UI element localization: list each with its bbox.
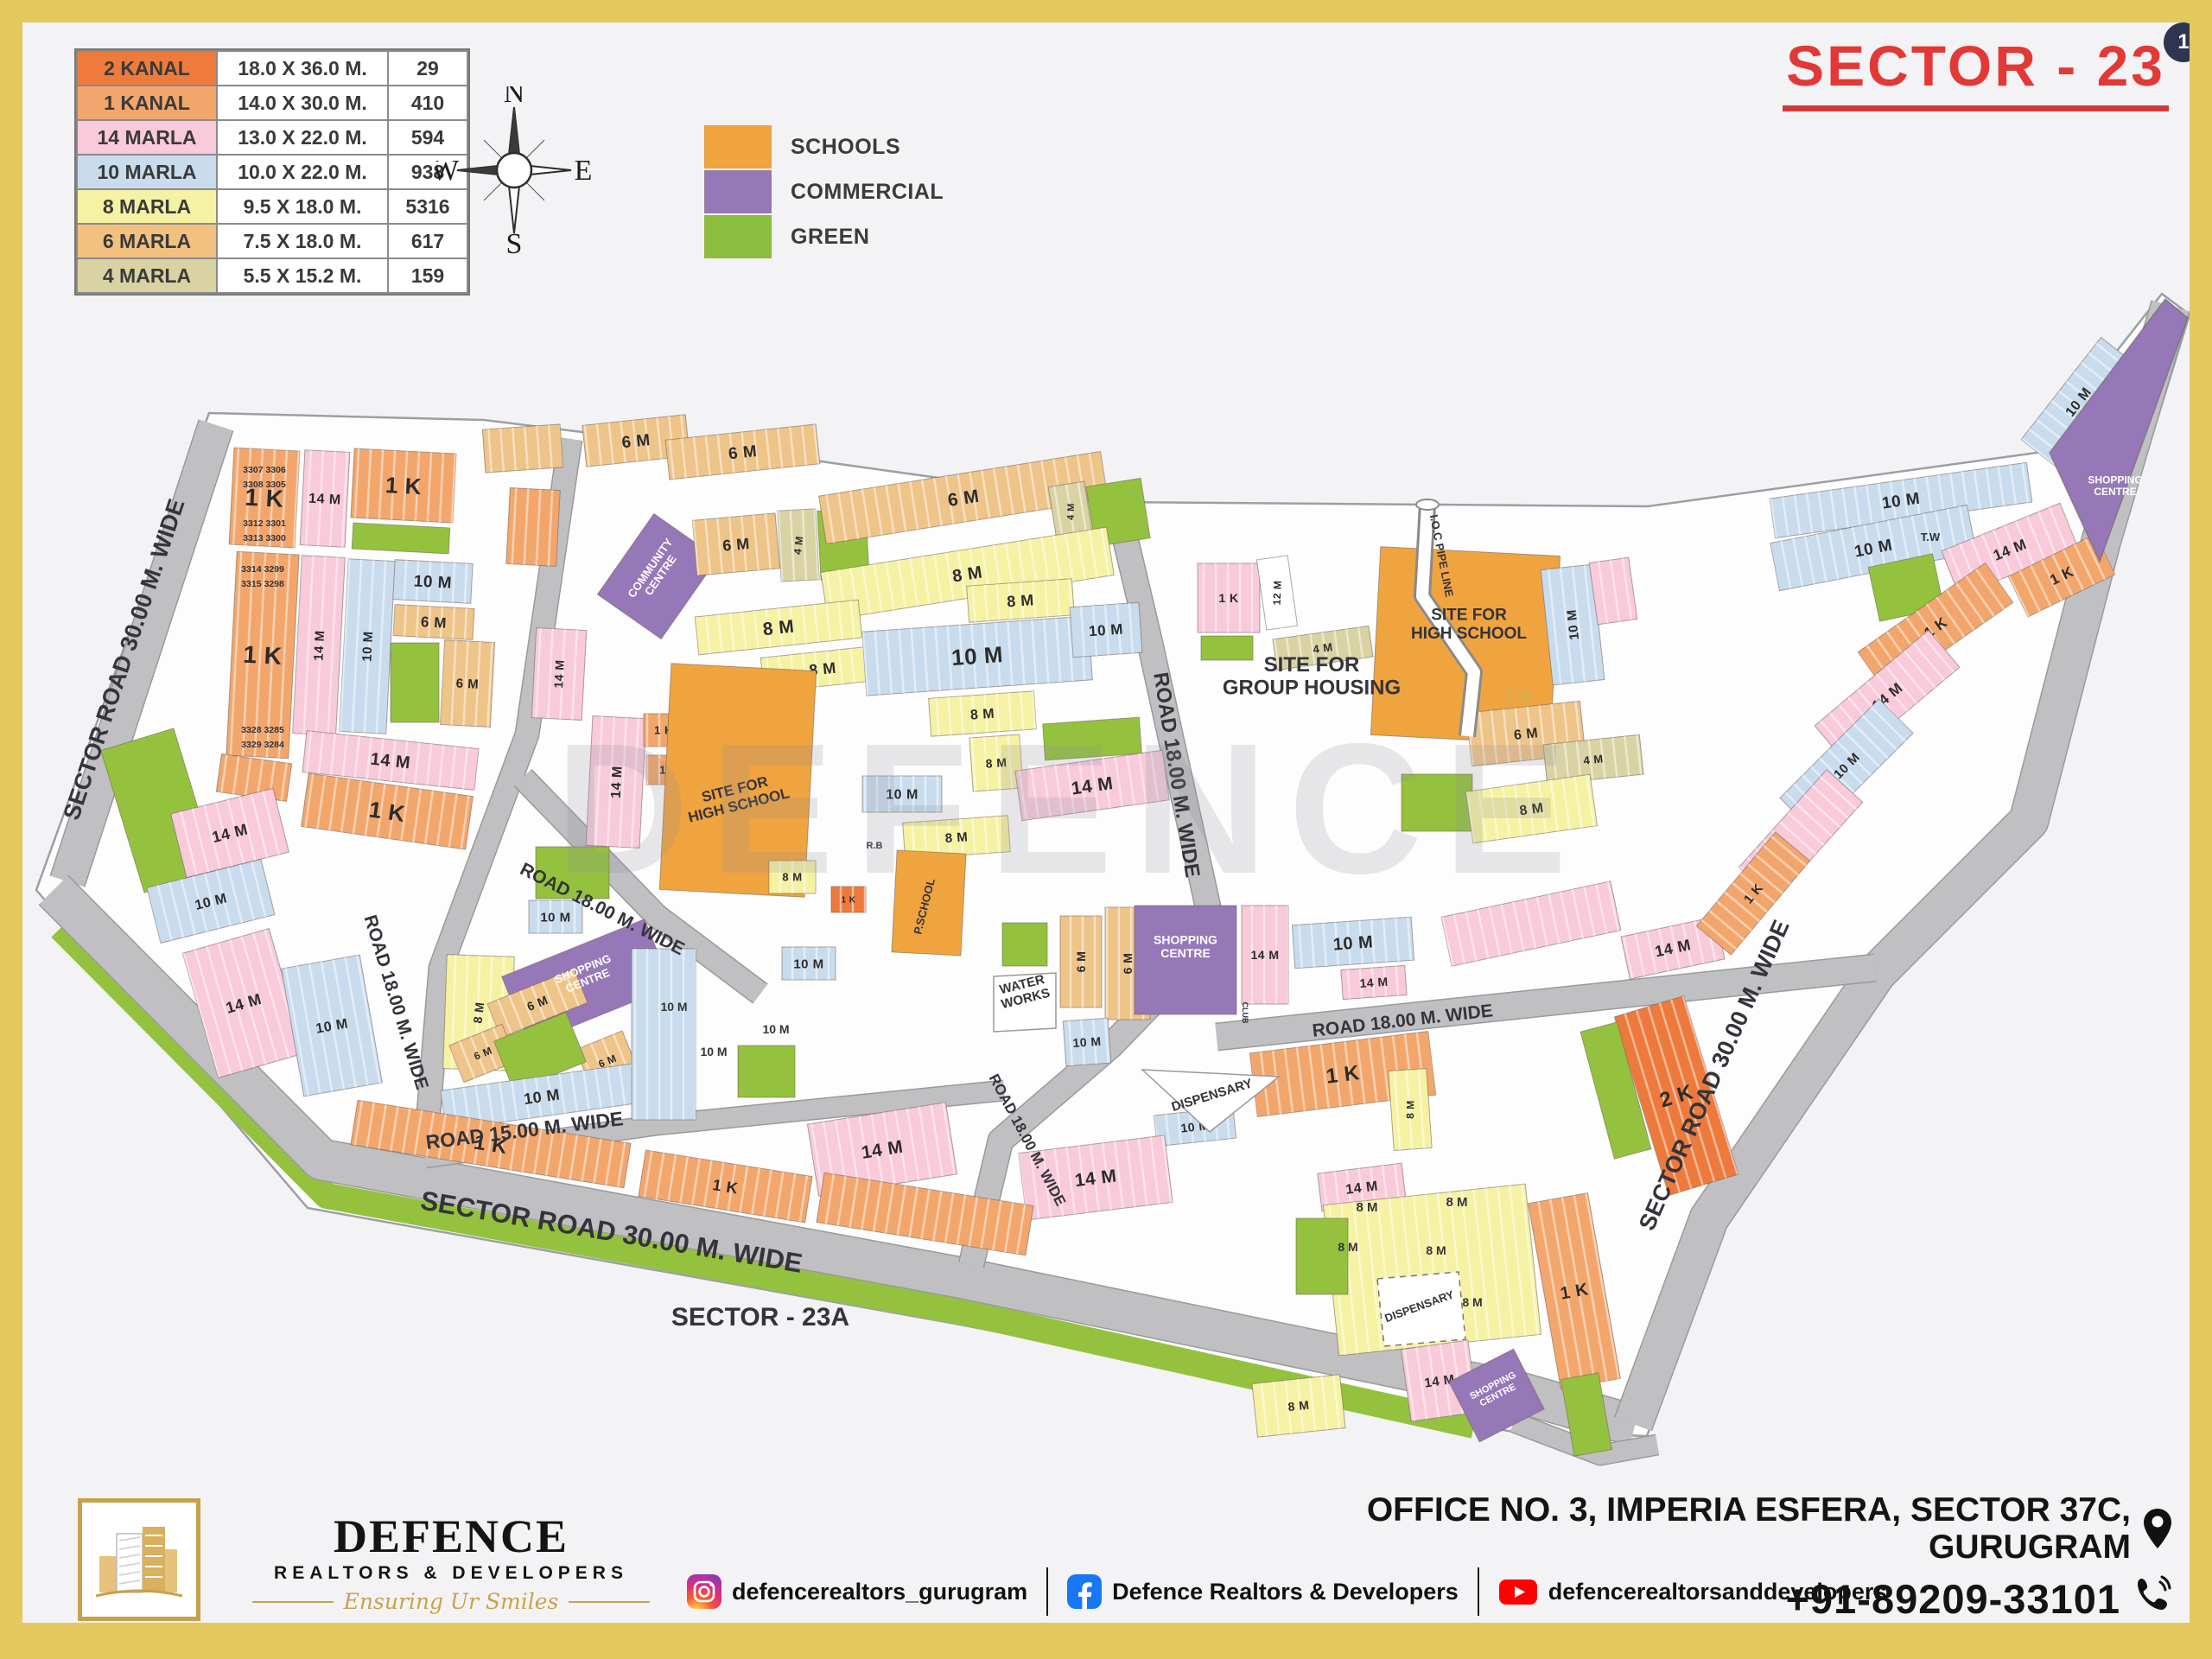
land-use-label: COMMERCIAL xyxy=(791,180,944,205)
plot-type-row: 4 MARLA5.5 X 15.2 M.159 xyxy=(77,258,467,293)
map-label: DEFENCE xyxy=(555,704,1587,912)
building-logo-icon xyxy=(91,1511,188,1608)
map-block: 10 M xyxy=(393,560,473,604)
block-label: 12 M xyxy=(1271,580,1284,605)
map-label: 3315 3298 xyxy=(241,579,284,589)
brand-name: DEFENCE xyxy=(252,1512,650,1561)
block-label: 1 K xyxy=(243,641,283,670)
map-block: 6 M xyxy=(440,640,494,728)
land-use-label: SCHOOLS xyxy=(791,135,900,160)
map-block: 14 M xyxy=(293,556,346,735)
map-label: 8 M xyxy=(1356,1200,1377,1215)
map-block: 6 M xyxy=(393,605,474,640)
phone-number: +91-89209-33101 xyxy=(1786,1575,2120,1623)
map-block: 10 M xyxy=(1070,602,1142,657)
map-label: 10 M xyxy=(762,1022,789,1036)
map-block: 10 M xyxy=(782,947,836,980)
block-label: 4 M xyxy=(791,535,806,555)
page-title: SECTOR - 23 xyxy=(1783,33,2169,111)
map-label: 3307 3306 xyxy=(243,465,286,475)
map-block: 4 M xyxy=(778,509,819,582)
block-label: 10 M xyxy=(413,573,452,593)
map-block: 8 M xyxy=(1252,1375,1345,1437)
block-label: 10 M xyxy=(1072,1034,1102,1050)
office-address-line2: GURUGRAM xyxy=(1367,1529,2131,1567)
block-label: 10 M xyxy=(1089,621,1124,640)
compass-south-label: S xyxy=(506,228,523,255)
land-use-item: COMMERCIAL xyxy=(704,171,944,213)
map-label: 3329 3284 xyxy=(241,740,284,750)
block-label: 4 M xyxy=(1066,503,1077,520)
block-label: 6 M xyxy=(1121,953,1135,975)
block-label: 14 M xyxy=(1250,948,1279,962)
map-block: 10 M xyxy=(1292,917,1414,969)
block-label: 8 M xyxy=(1287,1398,1310,1414)
block-label: 6 M xyxy=(455,677,479,692)
plot-size-legend-table: 2 KANAL18.0 X 36.0 M.291 KANAL14.0 X 30.… xyxy=(76,50,468,294)
plot-type-row: 8 MARLA9.5 X 18.0 M.5316 xyxy=(77,189,467,224)
map-label: 8 M xyxy=(1446,1195,1467,1210)
map-block: 1 K xyxy=(351,448,456,523)
map-block: 6 M xyxy=(1060,916,1102,1007)
block-label: 6 M xyxy=(621,431,652,452)
map-block: 10 M xyxy=(340,559,395,734)
map-block xyxy=(738,1046,795,1097)
map-label: 3308 3305 xyxy=(243,480,286,490)
plot-type-row: 14 MARLA13.0 X 22.0 M.594 xyxy=(77,120,467,155)
compass-west-label: W xyxy=(436,155,460,187)
land-use-swatch xyxy=(704,170,772,213)
land-use-item: GREEN xyxy=(704,216,944,257)
instagram-icon xyxy=(687,1574,721,1609)
map-block xyxy=(482,424,563,473)
map-label: 3314 3299 xyxy=(241,564,284,575)
block-label: 10 M xyxy=(1332,932,1374,954)
map-block: 8 M xyxy=(967,579,1075,622)
office-address-line1: OFFICE NO. 3, IMPERIA ESFERA, SECTOR 37C… xyxy=(1367,1491,2131,1529)
facebook-icon xyxy=(1067,1574,1102,1609)
phone-icon xyxy=(2133,1575,2172,1615)
map-label: SHOPPINGCENTRE xyxy=(2088,474,2142,497)
map-label: T.W xyxy=(1921,531,1941,543)
block-label: 6 M xyxy=(1074,951,1088,973)
block-label: 1 K xyxy=(1325,1061,1361,1089)
location-pin-icon xyxy=(2143,1508,2172,1549)
map-label: 10 M xyxy=(660,1000,687,1014)
block-label: 8 M xyxy=(470,1001,486,1025)
map-block xyxy=(632,949,696,1120)
map-block xyxy=(1296,1218,1348,1294)
page: 1 K14 M1 K6 M6 M1 K14 M10 M10 M6 M6 M14 … xyxy=(0,0,2212,1659)
block-label: 10 M xyxy=(793,957,823,971)
social-item-instagram[interactable]: defencerealtors_gurugram xyxy=(687,1574,1027,1609)
plot-type-row: 10 MARLA10.0 X 22.0 M.938 xyxy=(77,155,467,189)
land-use-item: SCHOOLS xyxy=(704,126,944,168)
land-use-swatch xyxy=(704,215,772,258)
map-label: SHOPPINGCENTRE xyxy=(1154,932,1217,960)
map-block xyxy=(1135,906,1236,1014)
map-block xyxy=(391,643,439,722)
block-label: 14 M xyxy=(551,659,567,689)
block-label: 6 M xyxy=(421,613,448,632)
map-label: SECTOR - 23A xyxy=(671,1303,849,1332)
map-label: 8 M xyxy=(1462,1295,1482,1309)
map-label: 3312 3301 xyxy=(243,518,286,529)
block-label: 6 M xyxy=(728,442,758,463)
block-label: 14 M xyxy=(308,492,341,508)
brand-tagline: Ensuring Ur Smiles xyxy=(252,1589,650,1614)
map-block: 1 K xyxy=(1198,563,1260,632)
block-label: 1 K xyxy=(367,796,407,827)
plot-type-row: 2 KANAL18.0 X 36.0 M.29 xyxy=(77,51,467,86)
compass-rose: N S W E xyxy=(436,86,592,255)
map-label: 3328 3285 xyxy=(241,725,284,735)
corner-badge: 1 xyxy=(2164,22,2203,62)
compass-north-label: N xyxy=(504,86,525,109)
map-block xyxy=(1589,557,1637,625)
map-block: 14 M xyxy=(300,450,350,548)
map-block xyxy=(506,488,561,567)
map-label: 8 M xyxy=(1338,1240,1357,1254)
brand-subtitle: REALTORS & DEVELOPERS xyxy=(252,1563,650,1584)
compass-east-label: E xyxy=(575,155,592,187)
plot-type-row: 1 KANAL14.0 X 30.0 M.410 xyxy=(77,86,467,120)
block-label: 8 M xyxy=(1404,1100,1416,1119)
social-handle: defencerealtors_gurugram xyxy=(732,1579,1027,1605)
block-label: 14 M xyxy=(1359,975,1389,990)
map-block: 10 M xyxy=(1063,1018,1111,1066)
contact-block: OFFICE NO. 3, IMPERIA ESFERA, SECTOR 37C… xyxy=(1367,1491,2172,1623)
map-label: 3313 3300 xyxy=(243,533,286,543)
map-block: 14 M xyxy=(1242,906,1288,1004)
block-label: 10 M xyxy=(359,631,376,662)
land-use-legend: SCHOOLSCOMMERCIALGREEN xyxy=(704,126,944,261)
block-label: 10 M xyxy=(950,641,1004,671)
land-use-label: GREEN xyxy=(791,225,869,250)
brand-logo xyxy=(78,1498,200,1621)
block-label: 6 M xyxy=(721,535,750,555)
map-block: 14 M xyxy=(1341,965,1407,999)
map-block: 8 M xyxy=(1389,1069,1432,1151)
block-label: 14 M xyxy=(311,630,327,661)
map-block: 6 M xyxy=(692,513,779,575)
map-label: CLUB xyxy=(1241,1002,1249,1024)
block-label: 1 K xyxy=(385,472,422,499)
land-use-swatch xyxy=(704,125,772,168)
map-label: 8 M xyxy=(1426,1243,1446,1257)
social-divider xyxy=(1046,1567,1048,1616)
footer: DEFENCE REALTORS & DEVELOPERS Ensuring U… xyxy=(0,1467,2212,1623)
map-block xyxy=(1002,923,1047,966)
map-block xyxy=(352,523,449,554)
map-label: 10 M xyxy=(700,1045,727,1058)
block-label: 8 M xyxy=(1007,591,1035,610)
block-label: 8 M xyxy=(762,616,796,639)
block-label: 1 K xyxy=(1218,591,1238,605)
plot-type-row: 6 MARLA7.5 X 18.0 M.617 xyxy=(77,224,467,258)
map-block xyxy=(1201,636,1253,660)
